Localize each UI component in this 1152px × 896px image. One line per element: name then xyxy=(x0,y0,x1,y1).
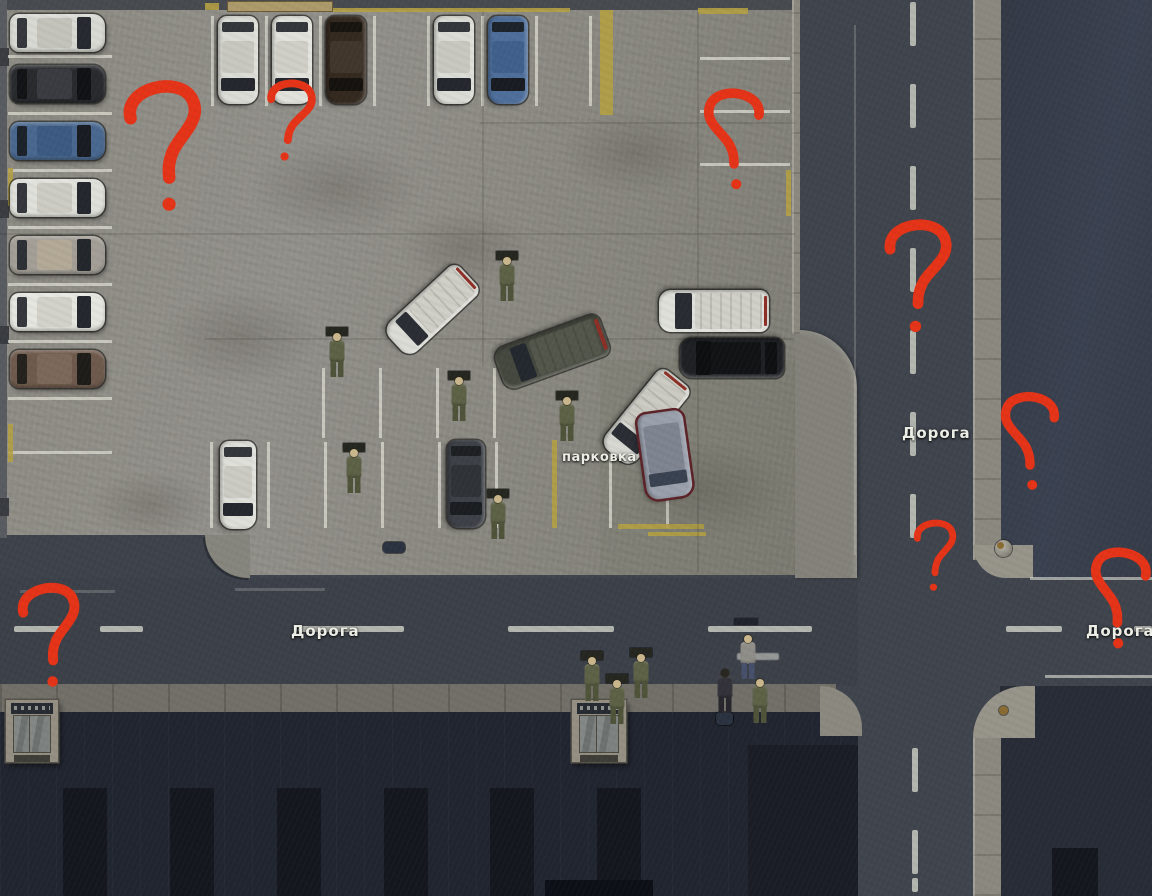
soldier-6[interactable] xyxy=(489,492,507,540)
soldier-7[interactable] xyxy=(583,654,601,702)
game-map: Дорога Дорога Дорога парковка xyxy=(0,0,1152,896)
person-legs xyxy=(611,708,624,724)
soldier-1[interactable] xyxy=(498,254,516,302)
person-legs xyxy=(635,682,648,698)
person-head xyxy=(350,449,358,457)
person-legs xyxy=(719,697,732,713)
person-legs xyxy=(754,707,767,723)
person-torso xyxy=(634,661,649,683)
civilian-1[interactable] xyxy=(716,666,734,714)
road-label-west: Дорога xyxy=(291,622,360,640)
person-torso xyxy=(753,686,768,708)
soldier-10[interactable] xyxy=(751,676,769,724)
person-legs xyxy=(331,361,344,377)
people-layer xyxy=(0,0,1152,896)
person-head xyxy=(756,679,764,687)
person-legs xyxy=(501,285,514,301)
person-torso xyxy=(347,456,362,478)
soldier-2[interactable] xyxy=(328,330,346,378)
soldier-3[interactable] xyxy=(450,374,468,422)
person-head xyxy=(563,397,571,405)
person-head xyxy=(333,333,341,341)
person-legs xyxy=(561,425,574,441)
road-label-vertical: Дорога xyxy=(902,424,971,442)
soldier-8[interactable] xyxy=(608,677,626,725)
person-head xyxy=(637,654,645,662)
soldier-4[interactable] xyxy=(558,394,576,442)
person-torso xyxy=(585,664,600,686)
person-legs xyxy=(586,685,599,701)
person-torso xyxy=(610,687,625,709)
person-torso xyxy=(452,384,467,406)
person-torso xyxy=(718,676,733,698)
person-head xyxy=(613,680,621,688)
person-head xyxy=(455,377,463,385)
person-legs xyxy=(492,523,505,539)
parking-label: парковка xyxy=(562,450,637,465)
person-legs xyxy=(453,405,466,421)
person-torso xyxy=(491,502,506,524)
person-head xyxy=(721,669,729,677)
person-legs xyxy=(348,477,361,493)
person-head xyxy=(744,635,752,643)
road-label-east: Дорога xyxy=(1086,622,1152,640)
person-head xyxy=(494,495,502,503)
civilian-2[interactable] xyxy=(739,632,757,680)
soldier-9[interactable] xyxy=(632,651,650,699)
person-torso xyxy=(560,404,575,426)
person-head xyxy=(588,657,596,665)
person-torso xyxy=(500,264,515,286)
person-torso xyxy=(741,642,756,664)
person-head xyxy=(503,257,511,265)
person-torso xyxy=(330,340,345,362)
soldier-5[interactable] xyxy=(345,446,363,494)
